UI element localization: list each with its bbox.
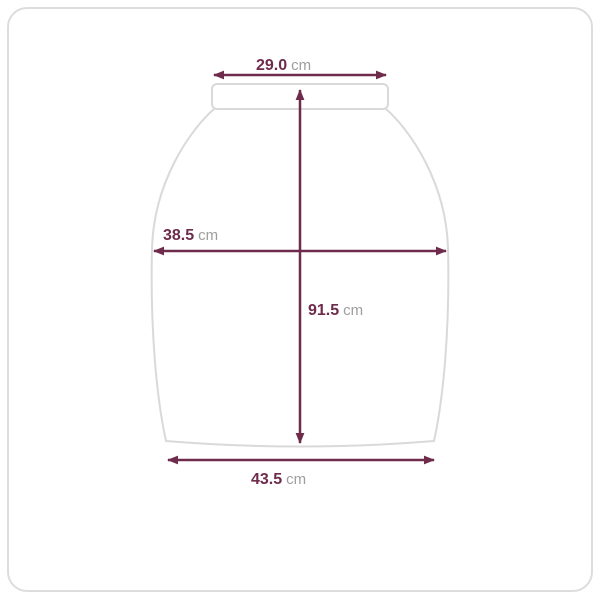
measurement-unit: cm (286, 471, 306, 488)
measurement-unit: cm (343, 302, 363, 319)
measurement-value: 38.5 (163, 227, 194, 244)
measurement-value: 91.5 (308, 302, 339, 319)
product-measurement-image: 29.0cm 38.5cm 91.5cm 43.5cm (0, 0, 600, 600)
garment-measurement-diagram (0, 0, 600, 600)
measurement-value: 29.0 (256, 57, 287, 74)
measurement-unit: cm (291, 57, 311, 74)
measurement-label-length: 91.5cm (308, 301, 363, 321)
measurement-label-hip-width: 38.5cm (163, 226, 218, 246)
measurement-value: 43.5 (251, 471, 282, 488)
measurement-unit: cm (198, 227, 218, 244)
measurement-label-hem-width: 43.5cm (251, 470, 306, 490)
measurement-label-top-width: 29.0cm (256, 56, 311, 76)
